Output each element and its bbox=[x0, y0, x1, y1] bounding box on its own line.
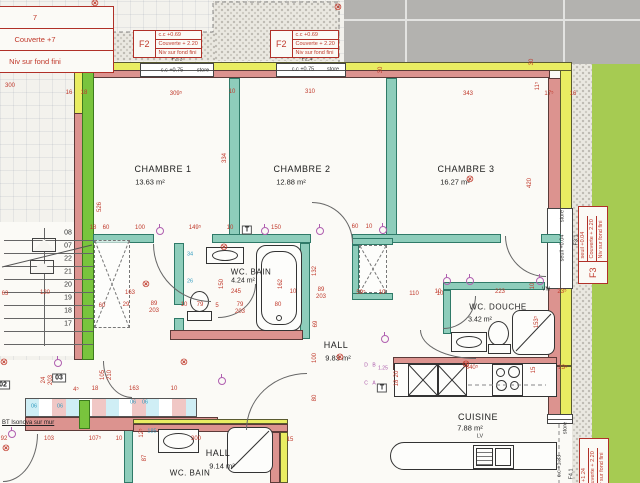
dim-label: 100 bbox=[135, 225, 145, 231]
dim-label: seuil +0.04 bbox=[560, 235, 566, 262]
dim-label: 10 bbox=[366, 224, 373, 230]
dim-label: 100 bbox=[312, 353, 318, 363]
dim-label: 10 bbox=[229, 89, 236, 95]
floor-plan-canvas: 7 Couverte +7 Niv sur fond fini F2 c.c +… bbox=[0, 0, 640, 483]
closet2-wall-top bbox=[352, 238, 393, 245]
concrete-slab bbox=[344, 0, 640, 64]
burner-icon bbox=[496, 380, 507, 391]
socket-symbol-icon bbox=[381, 335, 389, 343]
light-symbol-icon: ⊗ bbox=[462, 360, 470, 370]
dim-label: 18 bbox=[90, 225, 97, 231]
dim-label: 23⁵ bbox=[558, 365, 567, 371]
dim-label: 15 bbox=[287, 437, 294, 443]
dim-label: F4.1 bbox=[569, 468, 575, 479]
slab-joint bbox=[563, 0, 565, 64]
stair-step-number: 22 bbox=[64, 256, 72, 263]
dim-label: 162 bbox=[278, 279, 284, 289]
wall-insulation-layers bbox=[25, 398, 197, 417]
dim-label: T bbox=[377, 384, 387, 393]
dim-label: 150 bbox=[219, 279, 225, 289]
dim-label: 343 bbox=[463, 91, 473, 97]
dim-label: 18 bbox=[81, 90, 88, 96]
stair-step-number: 07 bbox=[64, 243, 72, 250]
dim-label: 10 bbox=[227, 225, 234, 231]
dim-label: F2.3 bbox=[171, 57, 182, 63]
table-row: Niv sur fond fini bbox=[156, 49, 201, 57]
room-label-hall2: HALL bbox=[206, 448, 231, 458]
dim-label: 203 bbox=[235, 309, 245, 315]
room-label-chambre2: CHAMBRE 2 bbox=[273, 164, 330, 174]
dim-label: 60 bbox=[103, 225, 110, 231]
socket-symbol-icon bbox=[8, 430, 16, 438]
dim-label: 59⁵ bbox=[356, 290, 365, 296]
dim-label: F2.4 bbox=[301, 57, 312, 63]
dim-label: A bbox=[372, 382, 375, 387]
level-table-f4: F4 c.c +1.24 Couverte + 2.20 Niv sur fon… bbox=[579, 438, 609, 483]
slab-joint bbox=[344, 19, 640, 21]
room-label-cuisine: CUISINE bbox=[458, 412, 498, 422]
dim-label: 210 bbox=[107, 370, 113, 380]
table-row: Couverte + 2.20 bbox=[588, 216, 597, 261]
table-row: c.c +0.69 bbox=[156, 31, 201, 40]
dim-label: 60 bbox=[352, 224, 359, 230]
wall-hall2-right bbox=[124, 430, 133, 483]
dim-label: 12⁵ bbox=[139, 428, 145, 437]
vanity-basin-wcbain2 bbox=[163, 433, 194, 449]
room-area-chambre2: 12.88 m² bbox=[276, 178, 306, 187]
wall-chambre1-chambre2 bbox=[229, 78, 240, 235]
dim-label: 15 bbox=[531, 367, 537, 374]
room-area-wcbain: 4.24 m² bbox=[231, 278, 255, 285]
dim-label: 06 bbox=[31, 404, 37, 410]
closet-chambre1 bbox=[94, 240, 130, 328]
dim-label: c.c +1.33 bbox=[557, 455, 563, 477]
room-area-cuisine: 7.88 m² bbox=[457, 424, 482, 433]
dim-label: 10 bbox=[290, 289, 297, 295]
slab-joint bbox=[405, 0, 407, 64]
socket-symbol-icon bbox=[156, 227, 164, 235]
dim-label: 20 bbox=[394, 371, 400, 378]
socket-symbol-icon bbox=[443, 277, 451, 285]
kitchen-cabinet bbox=[408, 364, 438, 396]
level-table-f2-right: F2 c.c +0.69 Couverte + 2.20 Niv sur fon… bbox=[270, 30, 339, 58]
dim-label: c.c +0.75 bbox=[292, 67, 314, 73]
table-row: c.c +1.24 bbox=[580, 448, 589, 483]
dim-label: 10 bbox=[171, 386, 178, 392]
dim-label: 60 bbox=[99, 303, 106, 309]
closet-chambre2 bbox=[359, 245, 387, 293]
dim-label: 63 bbox=[2, 291, 9, 297]
room-label-wcbain: WC. BAIN bbox=[231, 268, 271, 277]
table-row: Niv sur fond fini bbox=[293, 49, 338, 57]
dim-label: 185 bbox=[147, 429, 156, 435]
stair-step-number: 20 bbox=[64, 282, 72, 289]
dim-label: 80 bbox=[275, 302, 282, 308]
dim-label: store bbox=[560, 210, 566, 222]
dim-label: 16 bbox=[570, 91, 577, 97]
dim-label: 30 bbox=[529, 59, 535, 66]
wall-exterior-right-mid-insulation bbox=[560, 288, 572, 366]
table-row: Couverte + 2.20 bbox=[156, 40, 201, 49]
floor-plan: 7 Couverte +7 Niv sur fond fini F2 c.c +… bbox=[0, 0, 640, 483]
table-id: F2 bbox=[271, 31, 293, 57]
dim-label: 02 bbox=[0, 381, 10, 390]
room-label-wcdouche: WC. DOUCHE bbox=[469, 303, 526, 312]
room-area-wcdouche: 3.42 m² bbox=[468, 317, 492, 324]
stair-step-number: 19 bbox=[64, 295, 72, 302]
dim-label: 10 bbox=[530, 283, 536, 290]
table-id: F3 bbox=[579, 261, 607, 283]
room-label-chambre1: CHAMBRE 1 bbox=[134, 164, 191, 174]
dim-label: 110 bbox=[409, 291, 419, 297]
room-label-hall: HALL bbox=[324, 340, 349, 350]
wall-green-block bbox=[79, 400, 90, 429]
socket-symbol-icon bbox=[261, 227, 269, 235]
table-row: Niv sur fond fini bbox=[0, 51, 113, 72]
dim-label: B bbox=[372, 364, 375, 369]
dim-label: 103 bbox=[44, 436, 54, 442]
dim-label: 10 bbox=[181, 302, 188, 308]
table-row: Niv sur fond fini bbox=[597, 216, 605, 261]
socket-symbol-icon bbox=[536, 277, 544, 285]
table-row: Couverte + 2.20 bbox=[293, 40, 338, 49]
dim-label: 11⁵ bbox=[535, 82, 541, 91]
dim-label: 29 bbox=[123, 302, 130, 308]
table-row: Couverte + 2.20 bbox=[589, 448, 598, 483]
dim-label: 526 bbox=[97, 202, 103, 212]
dim-label: 310 bbox=[305, 89, 315, 95]
bathtub-drain bbox=[276, 315, 282, 321]
dim-label: BT Isonova sur mur bbox=[2, 420, 54, 426]
sink-drainer bbox=[476, 448, 493, 466]
dim-label: 150 bbox=[271, 225, 281, 231]
dim-label: 203 bbox=[149, 308, 159, 314]
room-area-hall2: 9.14 m² bbox=[209, 462, 234, 471]
dim-label: 10 bbox=[116, 436, 123, 442]
socket-symbol-icon bbox=[466, 277, 474, 285]
light-symbol-icon: ⊗ bbox=[466, 175, 474, 185]
level-table-topleft: 7 Couverte +7 Niv sur fond fini bbox=[0, 6, 114, 73]
stair-step-number: 21 bbox=[64, 269, 72, 276]
dim-label: 300 bbox=[5, 83, 15, 89]
dim-label: 17⁵ bbox=[544, 91, 553, 97]
dim-label: 18 bbox=[394, 380, 400, 387]
window-f41 bbox=[547, 414, 573, 424]
dim-label: store bbox=[563, 422, 569, 434]
toilet-tank-wcbain bbox=[187, 311, 212, 321]
dim-label: 06 bbox=[57, 404, 63, 410]
dim-label: 16 bbox=[66, 90, 73, 96]
dim-label: 420 bbox=[527, 178, 533, 188]
dim-label: 89 bbox=[151, 301, 158, 307]
light-symbol-icon: ⊗ bbox=[2, 444, 10, 454]
dim-label: 23⁵ bbox=[557, 289, 566, 295]
dim-label: 92 bbox=[1, 436, 8, 442]
level-table-f3: F3 seuil +0.04 Couverte + 2.20 Niv sur f… bbox=[578, 206, 608, 284]
dim-label: LV bbox=[477, 434, 483, 440]
dim-label: store bbox=[197, 68, 209, 74]
dim-label: 163 bbox=[129, 386, 139, 392]
dim-label: 105 bbox=[100, 370, 106, 380]
table-row: c.c +0.69 bbox=[293, 31, 338, 40]
dim-label: store bbox=[327, 67, 339, 73]
light-symbol-icon: ⊗ bbox=[220, 243, 228, 253]
dim-label: 10 bbox=[435, 289, 442, 295]
light-symbol-icon: ⊗ bbox=[334, 3, 342, 13]
toilet-tank-wcdouche bbox=[488, 344, 511, 354]
room-area-chambre1: 13.63 m² bbox=[135, 178, 165, 187]
dim-label: 120 bbox=[40, 290, 50, 296]
socket-symbol-icon bbox=[54, 359, 62, 367]
stair-arrow-icon bbox=[31, 261, 53, 273]
light-symbol-icon: ⊗ bbox=[142, 280, 150, 290]
dim-label: 18 bbox=[92, 386, 99, 392]
dim-label: 89 bbox=[318, 287, 325, 293]
dim-label: 06 bbox=[130, 400, 136, 406]
stair-step-number: 17 bbox=[64, 321, 72, 328]
dim-label: 334 bbox=[222, 153, 228, 163]
dim-label: 4⁵ bbox=[73, 387, 79, 393]
dim-label: 79 bbox=[237, 302, 244, 308]
dim-label: C bbox=[364, 382, 368, 387]
dim-label: 107⁵ bbox=[89, 436, 102, 442]
stair-arrow-icon bbox=[33, 239, 55, 251]
dim-label: 30 bbox=[378, 67, 384, 74]
dim-label: 10 bbox=[379, 290, 386, 296]
socket-symbol-icon bbox=[379, 226, 387, 234]
dim-label: 69 bbox=[313, 321, 319, 328]
burner-icon bbox=[508, 366, 520, 378]
table-row: Niv sur fond fini bbox=[598, 448, 606, 483]
toilet-bowl-wcdouche bbox=[488, 321, 509, 346]
table-row: Couverte +7 bbox=[0, 29, 113, 51]
stair-step-number: 18 bbox=[64, 308, 72, 315]
dim-label: 87 bbox=[142, 455, 148, 462]
burner-icon bbox=[496, 368, 505, 377]
dim-label: VM bbox=[542, 287, 550, 293]
dim-label: 5 bbox=[215, 303, 218, 309]
dim-label: 80 bbox=[312, 395, 318, 402]
room-label-chambre3: CHAMBRE 3 bbox=[437, 164, 494, 174]
dim-label: 245 bbox=[231, 289, 241, 295]
table-row: seuil +0.04 bbox=[579, 216, 588, 261]
wall-exterior-right-lower-insulation bbox=[560, 366, 572, 418]
socket-symbol-icon bbox=[218, 377, 226, 385]
table-row: 7 bbox=[0, 7, 113, 29]
dim-label: T bbox=[242, 226, 252, 235]
light-symbol-icon: ⊗ bbox=[180, 358, 188, 368]
stair-step-number: 08 bbox=[64, 230, 72, 237]
wall-wcbain-south bbox=[170, 330, 303, 340]
dim-label: 300 bbox=[191, 436, 201, 442]
dim-label: 163 bbox=[125, 290, 135, 296]
light-symbol-icon: ⊗ bbox=[336, 353, 344, 363]
dim-label: 06 bbox=[142, 400, 148, 406]
dim-label: 309⁵ bbox=[170, 91, 183, 97]
dim-label: 223 bbox=[495, 289, 505, 295]
wall-chambre2-chambre3 bbox=[386, 78, 397, 235]
dim-label: 34 bbox=[187, 252, 193, 258]
dim-label: 24 bbox=[41, 377, 47, 384]
socket-symbol-icon bbox=[316, 227, 324, 235]
table-id: F2 bbox=[134, 31, 156, 57]
dim-label: 153⁵ bbox=[534, 316, 540, 329]
dim-label: 132 bbox=[312, 266, 318, 276]
burner-icon bbox=[510, 381, 519, 390]
sink-basin bbox=[495, 448, 511, 466]
level-table-f2-left: F2 c.c +0.69 Couverte + 2.20 Niv sur fon… bbox=[133, 30, 202, 58]
dim-label: 1.25 bbox=[378, 367, 388, 372]
dim-label: 03 bbox=[52, 374, 66, 383]
dim-label: 149⁵ bbox=[189, 225, 202, 231]
dim-label: 203 bbox=[316, 294, 326, 300]
dim-label: 26 bbox=[187, 279, 193, 285]
light-symbol-icon: ⊗ bbox=[0, 358, 8, 368]
dim-label: D bbox=[364, 364, 368, 369]
room-label-wcbain2: WC. BAIN bbox=[170, 469, 210, 478]
dim-label: 79 bbox=[197, 302, 204, 308]
dim-label: c.c +0.75 bbox=[161, 68, 183, 74]
